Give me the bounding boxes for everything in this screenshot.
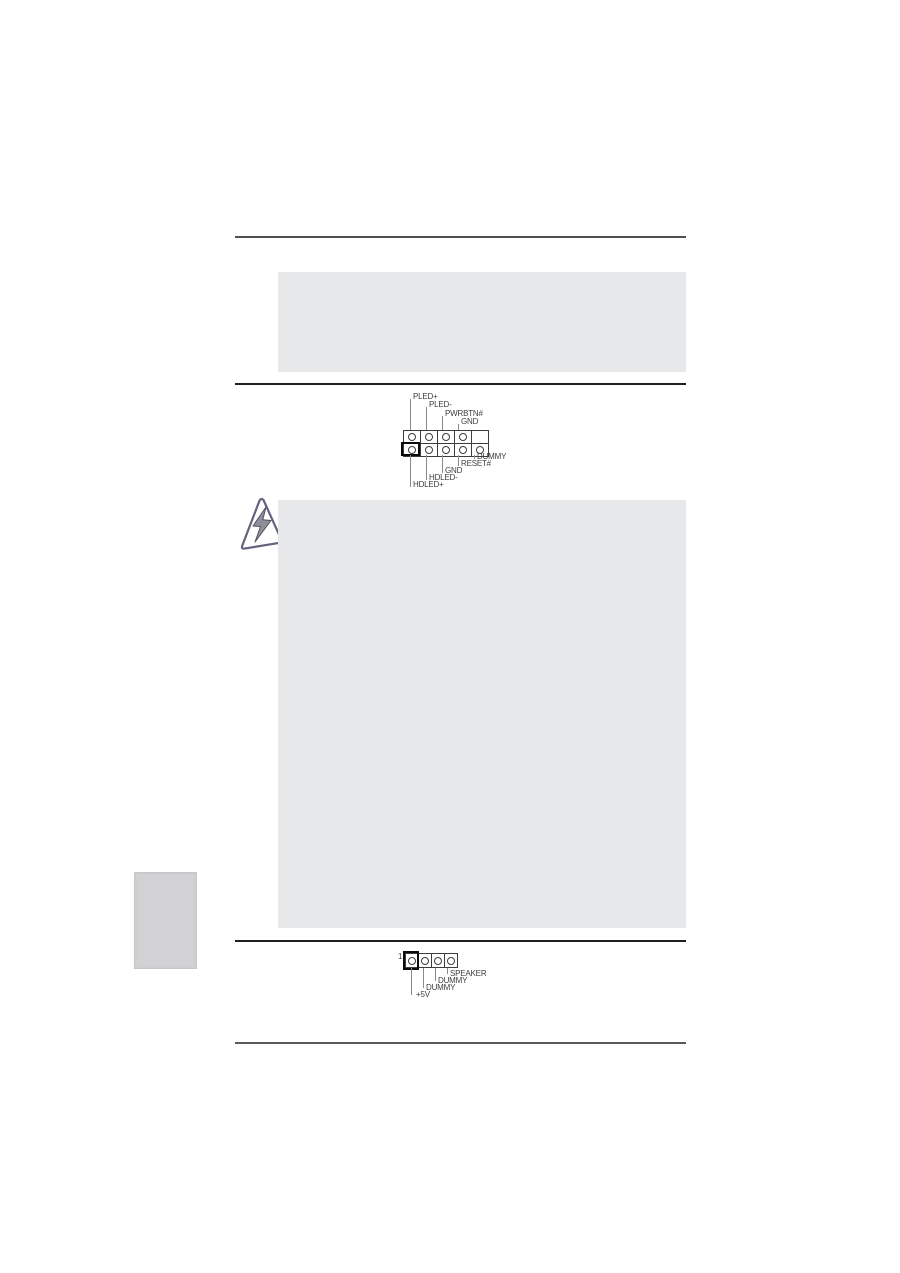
lead-line-hdled-plus xyxy=(410,455,411,487)
lead-line-5v xyxy=(411,968,412,995)
pin-cell xyxy=(438,444,454,456)
pin-label-reset: RESET# xyxy=(461,460,491,468)
pin-cell xyxy=(438,431,454,443)
pin-circle xyxy=(408,433,416,441)
pin-cell xyxy=(455,431,471,443)
lead-line-pled-plus xyxy=(410,399,411,430)
lead-line-reset xyxy=(458,455,459,466)
pin-label-pled-minus: PLED- xyxy=(429,401,452,409)
pin-circle xyxy=(425,446,433,454)
lead-line-gnd-bottom xyxy=(442,455,443,473)
pin1-marker-frame xyxy=(401,442,420,456)
divider-top xyxy=(235,236,686,238)
lead-line-speaker xyxy=(447,968,448,974)
pin-cell xyxy=(421,431,437,443)
lead-line-dummy-1 xyxy=(435,968,436,981)
lead-line-hdled-minus xyxy=(426,455,427,480)
empty-cell xyxy=(472,431,488,443)
pin-circle xyxy=(459,433,467,441)
pin-cell xyxy=(419,954,431,967)
pin-label-5v: +5V xyxy=(416,991,430,999)
pin-label-hdled-plus: HDLED+ xyxy=(413,481,444,489)
pin-cell xyxy=(432,954,444,967)
text-placeholder-box-top xyxy=(278,272,686,372)
pin-circle xyxy=(425,433,433,441)
pin1-number-label: 1 xyxy=(398,953,402,961)
lead-line-dummy-2 xyxy=(423,968,424,988)
divider-section-1 xyxy=(235,383,686,385)
pin-circle xyxy=(421,957,429,965)
lead-line-pwrbtn xyxy=(442,416,443,430)
text-placeholder-box-main xyxy=(278,500,686,928)
pin-circle xyxy=(434,957,442,965)
divider-section-2 xyxy=(235,940,686,942)
lead-line-pled-minus xyxy=(426,407,427,430)
pin-circle xyxy=(447,957,455,965)
pin-cell xyxy=(445,954,457,967)
pin-label-gnd-top: GND xyxy=(461,418,478,426)
pin-circle xyxy=(442,433,450,441)
manual-page: PLED+ PLED- PWRBTN# GND DUMMY RESET# GND… xyxy=(0,0,900,1273)
pin-circle xyxy=(459,446,467,454)
pin-label-dummy-2: DUMMY xyxy=(426,984,455,992)
language-side-tab xyxy=(134,872,197,969)
divider-bottom xyxy=(235,1042,686,1044)
pin-circle xyxy=(442,446,450,454)
pin-cell xyxy=(421,444,437,456)
